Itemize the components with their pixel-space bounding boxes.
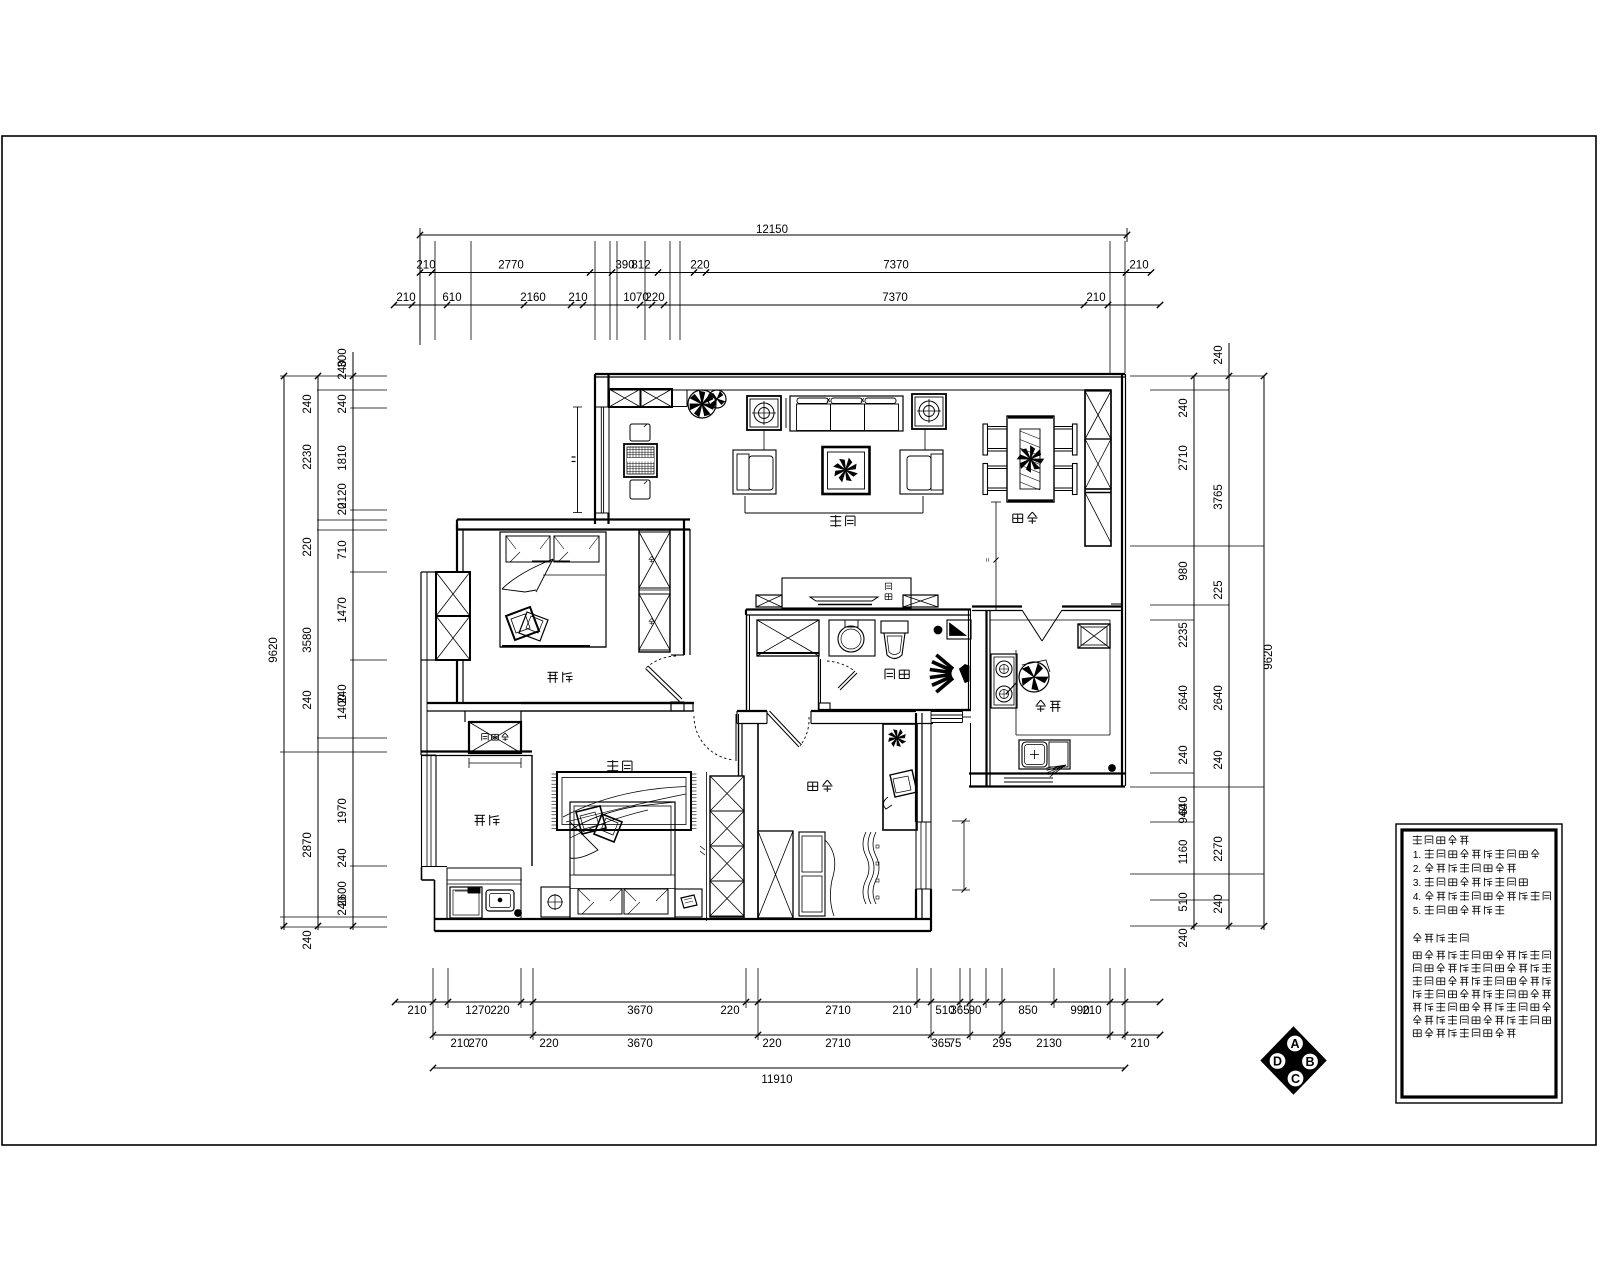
svg-text:210: 210	[416, 260, 435, 272]
svg-text:510: 510	[1178, 892, 1190, 911]
svg-text:12150: 12150	[756, 224, 788, 236]
svg-text:2710: 2710	[825, 1038, 851, 1050]
svg-text:940: 940	[1178, 804, 1190, 823]
svg-text:210: 210	[396, 292, 415, 304]
svg-text:2230: 2230	[302, 444, 314, 470]
svg-text:A: A	[1290, 1037, 1299, 1051]
svg-text:220: 220	[539, 1038, 558, 1050]
svg-text:2710: 2710	[1178, 445, 1190, 471]
svg-text:2130: 2130	[1036, 1038, 1062, 1050]
svg-text:2235: 2235	[1178, 622, 1190, 648]
svg-text:210: 210	[1129, 260, 1148, 272]
svg-text:240: 240	[1213, 894, 1225, 913]
svg-text:75: 75	[949, 1038, 962, 1050]
svg-text:7370: 7370	[882, 292, 908, 304]
svg-text:11910: 11910	[761, 1074, 792, 1086]
svg-text:1400: 1400	[337, 694, 349, 720]
svg-text:210: 210	[1086, 292, 1105, 304]
svg-text:240: 240	[1213, 750, 1225, 769]
svg-text:710: 710	[337, 540, 349, 559]
svg-text:220: 220	[762, 1038, 781, 1050]
svg-text:9620: 9620	[268, 637, 280, 663]
svg-text:270: 270	[468, 1038, 487, 1050]
svg-text:220: 220	[690, 260, 709, 272]
svg-text:220: 220	[302, 537, 314, 556]
svg-text:1270: 1270	[465, 1005, 491, 1017]
svg-text:3670: 3670	[627, 1005, 653, 1017]
svg-text:C: C	[1291, 1072, 1300, 1086]
svg-text:2710: 2710	[825, 1005, 851, 1017]
svg-text:240: 240	[1213, 345, 1225, 364]
svg-text:2.: 2.	[1413, 864, 1421, 875]
svg-text:1160: 1160	[1178, 840, 1190, 865]
svg-text:D: D	[1273, 1055, 1282, 1069]
svg-text:3670: 3670	[627, 1038, 653, 1050]
svg-text:220: 220	[720, 1005, 739, 1017]
svg-text:240: 240	[337, 848, 349, 867]
svg-text:=: =	[985, 558, 992, 562]
svg-text:210: 210	[568, 292, 587, 304]
svg-text:240: 240	[302, 930, 314, 949]
svg-text:210: 210	[450, 1038, 469, 1050]
svg-text:220: 220	[490, 1005, 509, 1017]
svg-text:2160: 2160	[520, 292, 546, 304]
svg-text:240: 240	[1178, 745, 1190, 764]
svg-text:1470: 1470	[337, 597, 349, 623]
svg-text:240: 240	[337, 896, 349, 915]
svg-text:9620: 9620	[1263, 644, 1275, 670]
svg-text:240: 240	[1178, 398, 1190, 417]
svg-text:980: 980	[1178, 561, 1190, 580]
svg-text:90: 90	[969, 1005, 982, 1017]
svg-text:2270: 2270	[1213, 836, 1225, 862]
svg-text:240: 240	[337, 394, 349, 413]
svg-text:3580: 3580	[302, 627, 314, 653]
svg-text:220: 220	[645, 292, 664, 304]
svg-text:B: B	[1305, 1055, 1314, 1069]
svg-text:5.: 5.	[1413, 906, 1421, 917]
svg-text:1970: 1970	[337, 798, 349, 824]
svg-text:610: 610	[442, 292, 461, 304]
svg-text:210: 210	[1082, 1005, 1101, 1017]
svg-text:240: 240	[302, 690, 314, 709]
svg-text:210: 210	[407, 1005, 426, 1017]
svg-text:240: 240	[337, 360, 349, 379]
svg-text:2870: 2870	[302, 832, 314, 858]
svg-text:210: 210	[892, 1005, 911, 1017]
svg-text:4.: 4.	[1413, 892, 1421, 903]
svg-text:2770: 2770	[498, 260, 524, 272]
svg-text:812: 812	[631, 260, 650, 272]
svg-text:1810: 1810	[337, 445, 349, 471]
svg-text:3765: 3765	[1213, 484, 1225, 510]
svg-text:225: 225	[1213, 580, 1225, 599]
svg-text:1.: 1.	[1413, 850, 1421, 861]
svg-text:240: 240	[1178, 928, 1190, 947]
svg-text:210: 210	[1130, 1038, 1149, 1050]
svg-text:20: 20	[337, 503, 349, 516]
svg-text:2640: 2640	[1178, 685, 1190, 711]
svg-text:850: 850	[1018, 1005, 1037, 1017]
svg-text:240: 240	[302, 394, 314, 413]
svg-text:3.: 3.	[1413, 878, 1421, 889]
svg-text:2640: 2640	[1213, 685, 1225, 711]
svg-text:7370: 7370	[883, 260, 909, 272]
